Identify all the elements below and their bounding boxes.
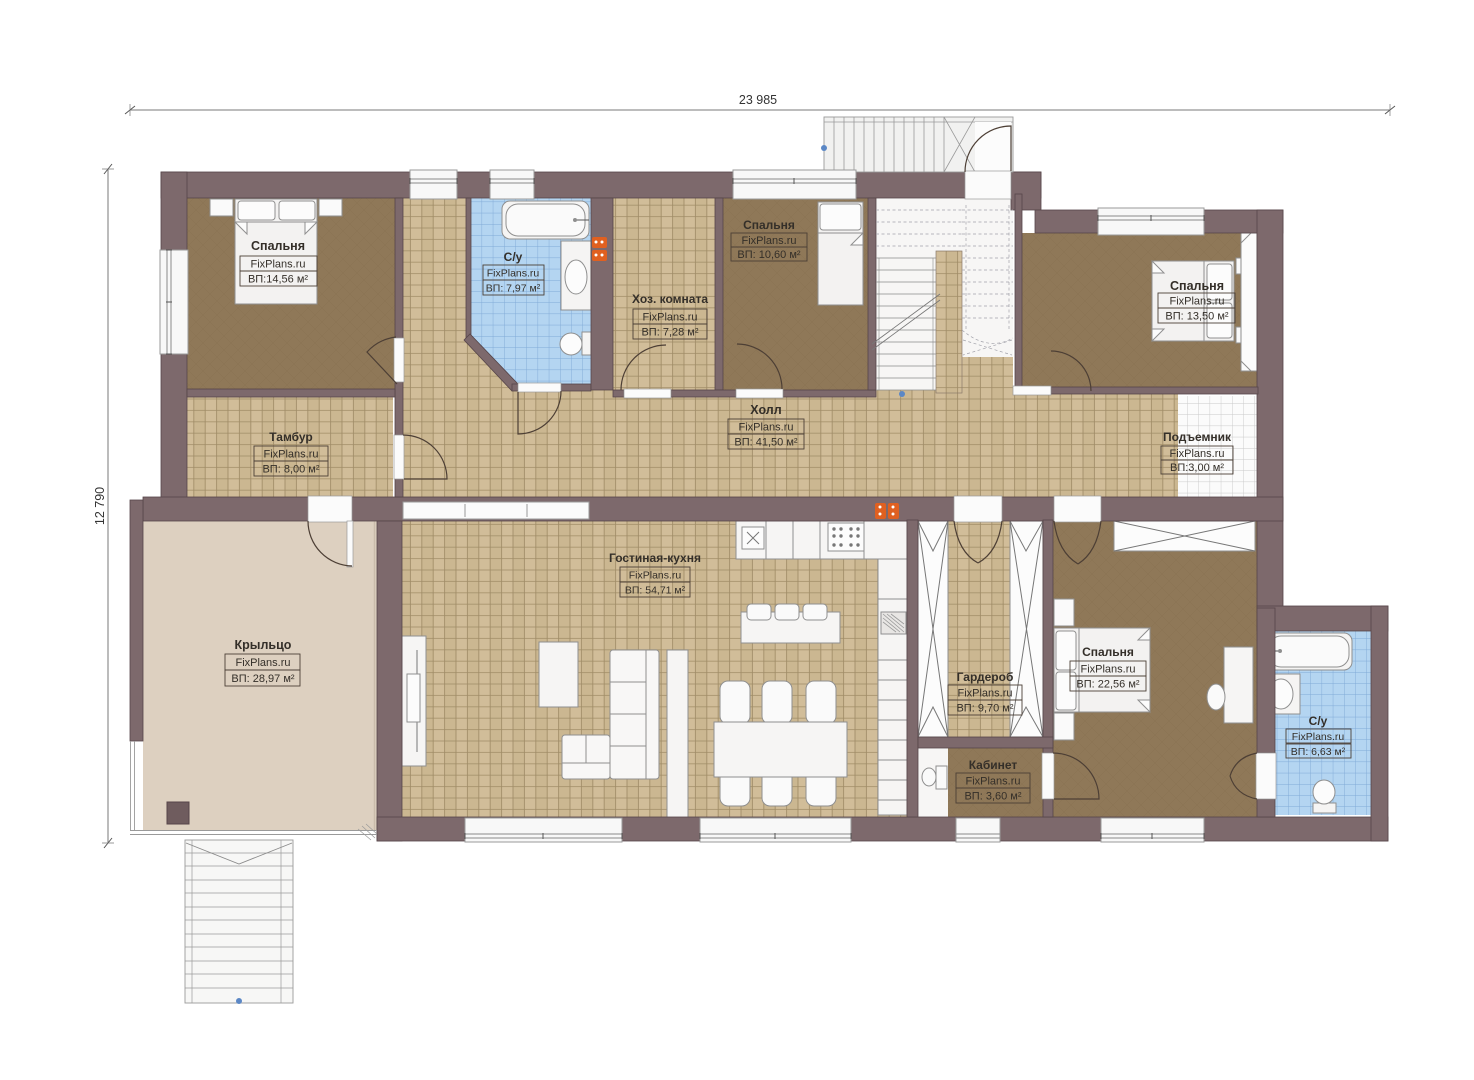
svg-text:FixPlans.ru: FixPlans.ru	[1169, 296, 1224, 308]
svg-text:FixPlans.ru: FixPlans.ru	[741, 235, 796, 247]
svg-text:С/у: С/у	[1309, 714, 1328, 728]
svg-text:Хоз. комната: Хоз. комната	[632, 292, 708, 306]
svg-text:ВП: 28,97 м²: ВП: 28,97 м²	[231, 673, 295, 685]
svg-text:FixPlans.ru: FixPlans.ru	[738, 422, 793, 434]
svg-text:Спальня: Спальня	[1082, 645, 1134, 659]
svg-text:FixPlans.ru: FixPlans.ru	[1080, 664, 1135, 676]
svg-text:Спальня: Спальня	[1170, 279, 1224, 293]
svg-text:FixPlans.ru: FixPlans.ru	[1292, 731, 1345, 743]
svg-text:FixPlans.ru: FixPlans.ru	[235, 657, 290, 669]
svg-text:FixPlans.ru: FixPlans.ru	[642, 312, 697, 324]
svg-text:23 985: 23 985	[739, 93, 777, 107]
svg-text:FixPlans.ru: FixPlans.ru	[487, 268, 540, 280]
svg-text:Спальня: Спальня	[251, 239, 305, 253]
svg-text:Спальня: Спальня	[743, 218, 795, 232]
svg-text:FixPlans.ru: FixPlans.ru	[1169, 448, 1224, 460]
svg-text:Кабинет: Кабинет	[969, 758, 1018, 772]
svg-text:ВП:14,56 м²: ВП:14,56 м²	[248, 274, 308, 286]
svg-text:ВП: 8,00 м²: ВП: 8,00 м²	[262, 464, 319, 476]
svg-text:ВП: 22,56 м²: ВП: 22,56 м²	[1076, 679, 1140, 691]
svg-text:Тамбур: Тамбур	[269, 430, 313, 444]
svg-text:ВП: 10,60 м²: ВП: 10,60 м²	[737, 249, 801, 261]
svg-text:ВП: 3,60 м²: ВП: 3,60 м²	[964, 791, 1021, 803]
svg-text:ВП: 9,70 м²: ВП: 9,70 м²	[956, 703, 1013, 715]
svg-text:Гардероб: Гардероб	[957, 670, 1014, 684]
svg-text:ВП:3,00 м²: ВП:3,00 м²	[1170, 462, 1224, 474]
svg-text:FixPlans.ru: FixPlans.ru	[263, 449, 318, 461]
svg-text:FixPlans.ru: FixPlans.ru	[965, 776, 1020, 788]
svg-text:Подъемник: Подъемник	[1163, 430, 1232, 444]
svg-text:Крыльцо: Крыльцо	[235, 638, 292, 652]
svg-text:12 790: 12 790	[93, 487, 107, 525]
svg-text:ВП: 13,50 м²: ВП: 13,50 м²	[1165, 311, 1229, 323]
svg-text:ВП: 7,97 м²: ВП: 7,97 м²	[486, 283, 541, 295]
svg-text:ВП: 54,71 м²: ВП: 54,71 м²	[625, 585, 686, 597]
svg-text:FixPlans.ru: FixPlans.ru	[957, 688, 1012, 700]
svg-text:ВП: 6,63 м²: ВП: 6,63 м²	[1291, 746, 1346, 758]
svg-text:С/у: С/у	[504, 250, 523, 264]
svg-text:ВП: 41,50 м²: ВП: 41,50 м²	[734, 437, 798, 449]
svg-text:Гостиная-кухня: Гостиная-кухня	[609, 551, 701, 565]
svg-text:FixPlans.ru: FixPlans.ru	[629, 570, 682, 582]
svg-text:Холл: Холл	[750, 403, 781, 417]
svg-text:FixPlans.ru: FixPlans.ru	[250, 259, 305, 271]
svg-text:ВП: 7,28 м²: ВП: 7,28 м²	[641, 327, 698, 339]
